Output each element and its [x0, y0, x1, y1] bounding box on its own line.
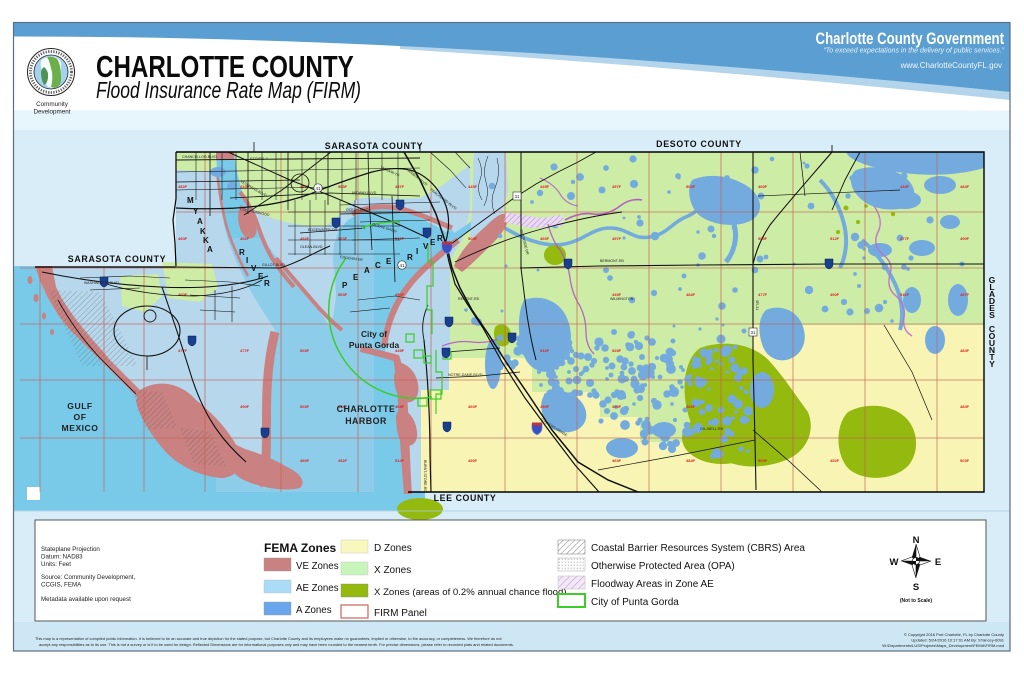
svg-text:W: W [890, 557, 899, 568]
svg-text:Community: Community [36, 101, 69, 108]
svg-text:528F: 528F [612, 348, 622, 353]
svg-text:(Not to Scale): (Not to Scale) [900, 598, 933, 604]
svg-text:Y: Y [193, 207, 199, 216]
svg-text:CCGIS, FEMA: CCGIS, FEMA [41, 582, 82, 589]
svg-text:512F: 512F [540, 348, 550, 353]
svg-text:R: R [239, 248, 245, 257]
svg-text:SARASOTA COUNTY: SARASOTA COUNTY [325, 141, 423, 151]
svg-text:K: K [200, 227, 206, 236]
svg-text:R: R [437, 234, 443, 243]
svg-text:477F: 477F [240, 348, 250, 353]
svg-text:NOTRE-DAME-BLVD: NOTRE-DAME-BLVD [448, 373, 483, 377]
svg-text:445F: 445F [468, 184, 478, 189]
svg-text:City of Punta Gorda: City of Punta Gorda [591, 597, 679, 608]
svg-text:R: R [264, 279, 270, 288]
svg-text:SARASOTA COUNTY: SARASOTA COUNTY [68, 254, 166, 264]
svg-text:© Copyright 2016 Port Charlott: © Copyright 2016 Port Charlotte, FL by C… [904, 632, 1004, 637]
svg-text:V: V [423, 242, 429, 251]
svg-text:Flood Insurance Rate Map (FIRM: Flood Insurance Rate Map (FIRM) [96, 79, 361, 104]
svg-text:503F: 503F [758, 458, 768, 463]
svg-text:WASHINGTON-BLVD: WASHINGTON-BLVD [84, 281, 119, 285]
svg-text:FEMA Zones: FEMA Zones [264, 541, 337, 555]
svg-text:490F: 490F [468, 458, 478, 463]
svg-text:FIRM Panel: FIRM Panel [374, 608, 427, 619]
svg-text:A: A [197, 217, 203, 226]
svg-text:VE Zones: VE Zones [296, 561, 339, 572]
svg-text:I: I [246, 256, 248, 265]
svg-text:MIDWAY-BLVD: MIDWAY-BLVD [352, 191, 377, 195]
svg-text:31: 31 [515, 194, 520, 199]
svg-text:A: A [364, 266, 370, 275]
svg-text:S: S [989, 310, 995, 320]
svg-text:OF: OF [74, 412, 87, 422]
svg-text:E: E [353, 273, 359, 282]
svg-text:AE Zones: AE Zones [296, 583, 339, 594]
svg-text:BERMONT-RD: BERMONT-RD [600, 259, 625, 263]
svg-text:484F: 484F [686, 292, 696, 297]
svg-text:490F: 490F [612, 404, 622, 409]
svg-text:GILLOT-BLVD: GILLOT-BLVD [262, 263, 285, 267]
svg-text:434F: 434F [900, 184, 910, 189]
svg-text:503F: 503F [468, 236, 478, 241]
svg-text:477F: 477F [900, 236, 910, 241]
svg-text:512F: 512F [830, 236, 840, 241]
svg-text:REGENT-RD: REGENT-RD [458, 297, 480, 301]
svg-text:Charlotte County Government: Charlotte County Government [816, 30, 1004, 49]
svg-text:484F: 484F [960, 404, 970, 409]
svg-text:Datum: NAD83: Datum: NAD83 [41, 554, 83, 561]
svg-text:MEXICO: MEXICO [62, 423, 99, 433]
svg-text:LEE COUNTY: LEE COUNTY [434, 493, 497, 503]
svg-text:OIL-WELL-RD: OIL-WELL-RD [700, 427, 724, 431]
svg-text:Units: Feet: Units: Feet [41, 561, 71, 568]
svg-text:WILMINGTON: WILMINGTON [610, 297, 634, 301]
svg-text:460F: 460F [758, 184, 768, 189]
svg-text:490F: 490F [240, 404, 250, 409]
svg-text:503F: 503F [338, 292, 348, 297]
svg-text:EZZARD-?: EZZARD-? [250, 157, 268, 161]
svg-text:41: 41 [399, 263, 405, 268]
svg-text:S: S [913, 582, 919, 593]
svg-text:41: 41 [315, 186, 321, 191]
svg-text:490F: 490F [830, 292, 840, 297]
svg-text:Development: Development [33, 109, 70, 116]
svg-text:GULF: GULF [67, 401, 92, 411]
svg-text:512F: 512F [395, 458, 405, 463]
svg-text:A Zones: A Zones [296, 605, 332, 616]
svg-text:452F: 452F [240, 236, 250, 241]
svg-text:Updated: 5/24/2016 10:17:01 AM: Updated: 5/24/2016 10:17:01 AM By: SYanc… [911, 638, 1004, 643]
svg-text:477F: 477F [758, 292, 768, 297]
svg-text:E: E [935, 557, 941, 568]
svg-text:OLEAN-BLVD: OLEAN-BLVD [300, 245, 323, 249]
svg-text:Punta Gorda: Punta Gorda [349, 340, 400, 350]
svg-text:503F: 503F [338, 184, 348, 189]
svg-text:497F: 497F [612, 184, 622, 189]
svg-text:Stateplane Projection: Stateplane Projection [41, 546, 100, 553]
svg-text:“To exceed expectations in the: “To exceed expectations in the delivery … [823, 48, 1004, 55]
svg-text:This map is a representation o: This map is a representation of compiled… [35, 636, 502, 641]
svg-text:484F: 484F [960, 348, 970, 353]
svg-text:31: 31 [751, 330, 756, 335]
svg-text:497F: 497F [960, 292, 970, 297]
svg-text:503F: 503F [960, 458, 970, 463]
svg-text:accept any responsibilities as: accept any responsibilities as to its us… [39, 642, 514, 647]
svg-text:W:\Departments\LUS\Projects\Ma: W:\Departments\LUS\Projects\Maps_Develop… [882, 643, 1004, 648]
svg-text:K: K [203, 236, 209, 245]
svg-text:460F: 460F [300, 458, 310, 463]
svg-text:Source: Community Development,: Source: Community Development, [41, 574, 136, 581]
svg-text:I: I [416, 247, 418, 256]
svg-text:460F: 460F [468, 404, 478, 409]
svg-text:463F: 463F [612, 458, 622, 463]
svg-text:A: A [207, 245, 213, 254]
svg-text:490F: 490F [960, 236, 970, 241]
svg-text:452F: 452F [178, 184, 188, 189]
svg-text:463F: 463F [395, 404, 405, 409]
svg-text:SR-31: SR-31 [755, 300, 759, 310]
svg-text:City of: City of [361, 329, 387, 339]
svg-text:452F: 452F [830, 458, 840, 463]
svg-text:E: E [430, 238, 436, 247]
svg-text:503F: 503F [300, 404, 310, 409]
svg-text:C: C [375, 261, 381, 270]
svg-text:503F: 503F [686, 184, 696, 189]
svg-text:463F: 463F [686, 404, 696, 409]
svg-text:E: E [386, 257, 392, 266]
svg-text:445F: 445F [540, 184, 550, 189]
svg-text:HARBOR: HARBOR [345, 416, 387, 426]
svg-text:503F: 503F [300, 348, 310, 353]
svg-text:EDGEWATER-DR: EDGEWATER-DR [308, 228, 338, 232]
svg-text:Coastal Barrier Resources Syst: Coastal Barrier Resources System (CBRS) … [591, 543, 805, 554]
svg-text:Y: Y [989, 359, 995, 369]
svg-text:Otherwise Protected Area (OPA): Otherwise Protected Area (OPA) [591, 561, 735, 572]
svg-text:X Zones (areas of 0.2% annual: X Zones (areas of 0.2% annual chance flo… [374, 587, 567, 598]
svg-text:460F: 460F [178, 236, 188, 241]
svg-text:X Zones: X Zones [374, 565, 411, 576]
svg-text:497F: 497F [612, 236, 622, 241]
svg-text:R: R [407, 253, 413, 262]
svg-text:484F: 484F [960, 184, 970, 189]
svg-text:490F: 490F [540, 404, 550, 409]
svg-text:M: M [187, 196, 194, 205]
svg-text:V: V [251, 264, 257, 273]
svg-text:D Zones: D Zones [374, 543, 412, 554]
svg-text:BURNT-STORE-RD: BURNT-STORE-RD [423, 460, 427, 492]
svg-text:452F: 452F [338, 458, 348, 463]
svg-text:OCEAN-BLVD: OCEAN-BLVD [346, 208, 370, 212]
svg-text:CHARLOTTE: CHARLOTTE [337, 404, 396, 414]
svg-text:DESOTO COUNTY: DESOTO COUNTY [656, 139, 742, 149]
svg-text:P: P [342, 281, 348, 290]
svg-text:497F: 497F [395, 184, 405, 189]
svg-text:460F: 460F [540, 236, 550, 241]
svg-text:484F: 484F [686, 458, 696, 463]
svg-text:Floodway Areas in Zone AE: Floodway Areas in Zone AE [591, 579, 714, 590]
svg-text:www.CharlotteCountyFL.gov: www.CharlotteCountyFL.gov [900, 61, 1002, 70]
svg-text:512F: 512F [900, 292, 910, 297]
svg-text:Metadata available upon reques: Metadata available upon request [41, 596, 131, 603]
svg-text:CHANCELLOR-BLVD: CHANCELLOR-BLVD [182, 155, 217, 159]
